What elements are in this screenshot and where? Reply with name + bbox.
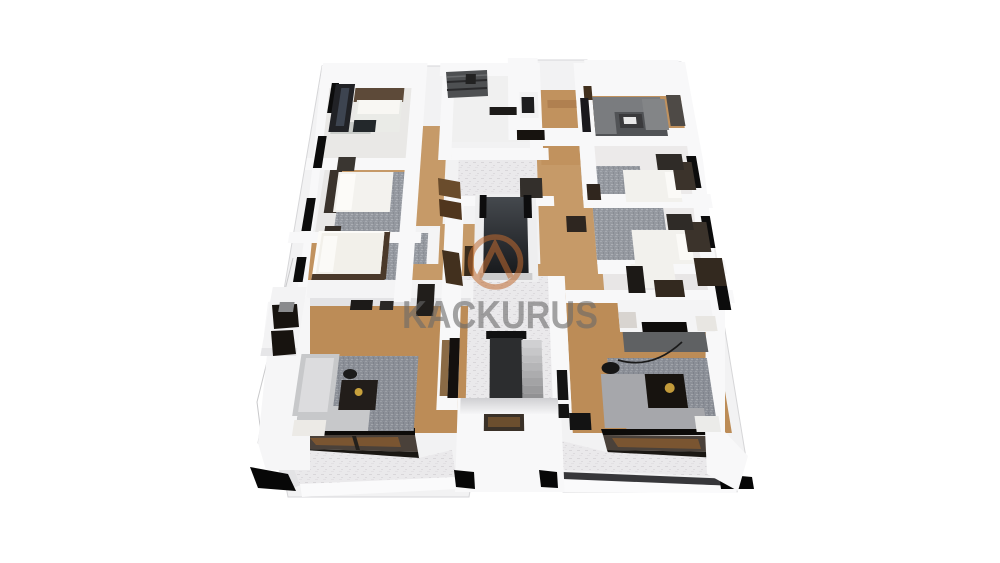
svg-text:KACKURUS: KACKURUS bbox=[402, 294, 598, 337]
